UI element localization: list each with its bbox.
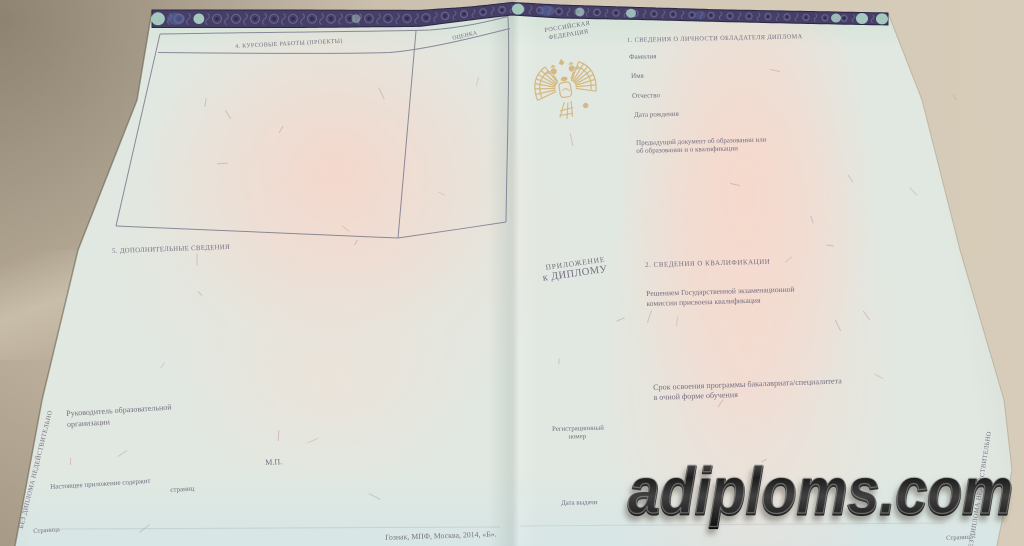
svg-text:adiploms.com: adiploms.com [628,454,1013,528]
